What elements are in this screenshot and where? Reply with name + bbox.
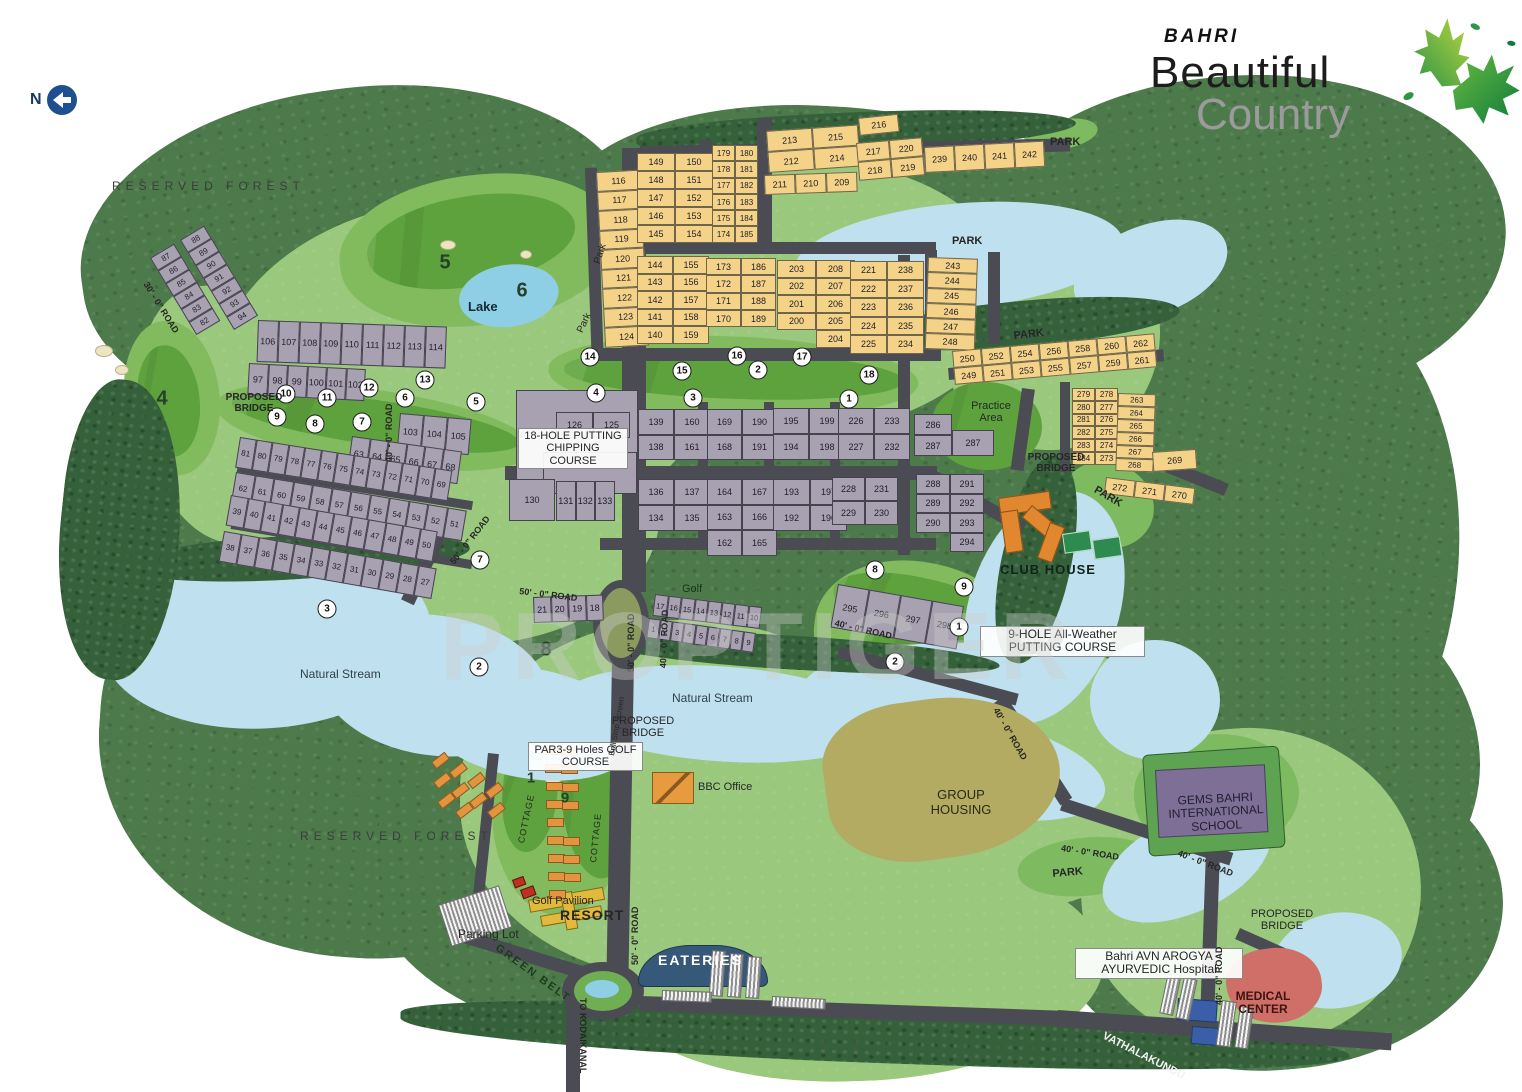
road-label-50: 50' - 0" ROAD [626, 614, 636, 672]
golf-label: Golf [682, 583, 702, 595]
north-indicator: N [30, 84, 78, 116]
golf-hole-marker: 2 [886, 653, 905, 672]
plot-cell-277: 277 [1095, 401, 1118, 414]
plot-block-174-185: 179180178181177182176183175184174185 [712, 145, 758, 243]
plot-block-217-220: 217220218219 [856, 137, 925, 181]
golf-hole-marker: 11 [318, 389, 337, 408]
plot-cell-226: 226 [838, 408, 874, 434]
plot-cell-233: 233 [874, 408, 910, 434]
logo-line2: Country [1196, 90, 1350, 140]
lake-label: Lake [468, 300, 498, 315]
plot-cell-209: 209 [826, 172, 858, 193]
plot-cell-251: 251 [982, 363, 1012, 382]
golf-hole-marker: 8 [306, 415, 325, 434]
park-label: PARK [1050, 136, 1080, 148]
plot-cell-225: 225 [850, 335, 887, 354]
plot-cell-191: 191 [742, 435, 777, 461]
plot-cell-185: 185 [735, 226, 758, 242]
plot-cell-112: 112 [382, 324, 404, 367]
road-label-40: 40' - 0" ROAD [1214, 947, 1224, 1005]
plot-block-226-233: 226233227232 [838, 408, 910, 460]
plot-cell-192: 192 [773, 505, 810, 531]
natural-stream-label: Natural Stream [300, 668, 381, 681]
plot-cell-230: 230 [865, 501, 898, 525]
golf-hole-marker: 3 [684, 389, 703, 408]
stream-east [1090, 640, 1220, 760]
plot-cell-161: 161 [674, 435, 710, 461]
plot-cell-201: 201 [777, 295, 816, 313]
chipping-course-label: 18-HOLE PUTTING CHIPPING COURSE [518, 428, 628, 469]
plot-cell-156: 156 [673, 274, 709, 292]
plot-cell-290: 290 [916, 513, 950, 533]
plot-cell-271: 271 [1134, 481, 1166, 502]
leaf-icon [1378, 10, 1522, 135]
plot-cell-283: 283 [1072, 439, 1095, 452]
golf-hole-marker: 8 [866, 561, 885, 580]
plot-cell-139: 139 [638, 409, 674, 435]
plot-cell-153: 153 [675, 207, 713, 225]
plot-cell-169: 169 [707, 409, 742, 435]
plot-287: 287 [952, 430, 994, 456]
brand-name: BAHRI [1164, 26, 1350, 48]
golf-hole-marker: 1 [950, 618, 969, 637]
golf-hole-marker: 1 [840, 390, 859, 409]
plot-block-145-154: 149150148151147152146153145154 [637, 153, 713, 243]
plot-cell-287: 287 [914, 435, 952, 456]
plot-cell-282: 282 [1072, 426, 1095, 439]
plot-cell-234: 234 [887, 335, 924, 354]
plot-cell-110: 110 [340, 323, 362, 366]
golf-pavilion-label: Golf Pavilion [532, 895, 594, 907]
plot-block-134-137: 136137134135 [638, 479, 710, 531]
plot-cell-135: 135 [674, 505, 710, 531]
plot-cell-292: 292 [950, 494, 984, 514]
plot-block-200-208: 203208202207201206200205204 [777, 260, 855, 348]
plot-cell-166: 166 [742, 505, 777, 531]
plot-block-288-294: 288291289292290293294 [916, 474, 984, 552]
plot-cell-275: 275 [1095, 426, 1118, 439]
plot-cell-134: 134 [638, 505, 674, 531]
plot-cell-130: 130 [509, 479, 555, 521]
plot-cell-148: 148 [637, 171, 675, 189]
road-label-50: 50' - 0" ROAD [630, 907, 640, 965]
plot-cell-144: 144 [637, 256, 673, 274]
park-label: PARK [1052, 865, 1083, 880]
golf-hole-marker: 3 [318, 600, 337, 619]
plot-cell-243: 243 [927, 257, 978, 274]
plot-block-131-133: 131132133 [556, 481, 615, 521]
plot-cell-269: 269 [1152, 449, 1197, 472]
plot-cell-229: 229 [832, 501, 865, 525]
plot-block-140-159: 144155143156142157141158140159 [637, 256, 709, 344]
plot-cell-245: 245 [926, 288, 977, 305]
plot-cell-116: 116 [596, 170, 641, 192]
course-number: 9 [561, 790, 569, 807]
plot-cell-165: 165 [742, 530, 777, 556]
plot-cell-158: 158 [673, 309, 709, 327]
plot-cell-210: 210 [795, 173, 827, 194]
plot-cell-141: 141 [637, 309, 673, 327]
golf-hole-marker: 7 [471, 551, 490, 570]
reserved-forest-label: RESERVED FOREST [300, 830, 493, 843]
course-number: 1 [527, 770, 535, 787]
plot-cell-113: 113 [403, 325, 425, 368]
plot-cell-143: 143 [637, 274, 673, 292]
plot-cell-293: 293 [950, 513, 984, 533]
plot-cell-157: 157 [673, 291, 709, 309]
par3-course-label: PAR3-9 Holes GOLF COURSE [528, 742, 643, 771]
plot-cell-221: 221 [850, 261, 887, 280]
plot-cell-294: 294 [950, 533, 984, 553]
plot-cell-232: 232 [874, 434, 910, 460]
plot-cell-190: 190 [742, 409, 777, 435]
plot-cell-218: 218 [858, 159, 893, 181]
plot-cell-170: 170 [706, 310, 741, 327]
north-arrow-icon [46, 84, 78, 116]
plot-block-106-114: 106107108109110111112113114 [257, 320, 447, 369]
plot-cell-268: 268 [1115, 458, 1153, 472]
plot-cell-147: 147 [637, 189, 675, 207]
plot-cell-172: 172 [706, 275, 741, 292]
tennis-court [1062, 530, 1093, 554]
brand-logo: BAHRI Beautiful Country [1150, 26, 1350, 140]
plot-cell-174: 174 [712, 226, 735, 242]
plot-cell-214: 214 [813, 146, 860, 170]
plot-cell-10: 10 [746, 606, 762, 629]
plot-cell-242: 242 [1014, 141, 1045, 169]
cottage-unit [563, 837, 580, 846]
plot-cell-21: 21 [533, 596, 551, 623]
plot-cell-183: 183 [735, 194, 758, 210]
natural-stream-label: Natural Stream [672, 692, 753, 705]
plot-cell-223: 223 [850, 298, 887, 317]
plot-cell-263: 263 [1118, 393, 1156, 407]
plot-cell-274: 274 [1095, 439, 1118, 452]
plot-cell-177: 177 [712, 178, 735, 194]
plot-cell-270: 270 [1163, 484, 1195, 505]
plot-cell-257: 257 [1069, 355, 1099, 374]
plot-cell-117: 117 [597, 189, 642, 211]
plot-cell-247: 247 [925, 318, 976, 335]
golf-hole-marker: 16 [728, 347, 747, 366]
plot-cell-133: 133 [595, 481, 615, 521]
site-master-plan-map: 116117118119120121122123124 149150148151… [0, 0, 1522, 1092]
plot-block-168-191: 169190168191 [707, 409, 777, 460]
plot-cell-181: 181 [735, 161, 758, 177]
plot-cell-231: 231 [865, 477, 898, 501]
plot-cell-160: 160 [674, 409, 710, 435]
plot-cell-176: 176 [712, 194, 735, 210]
plot-cell-253: 253 [1011, 360, 1041, 379]
plot-cell-132: 132 [576, 481, 596, 521]
plot-cell-228: 228 [832, 477, 865, 501]
road-label-40: 40' - 0" ROAD [384, 404, 394, 462]
plot-cell-163: 163 [707, 505, 742, 531]
plot-cell-195: 195 [773, 408, 809, 434]
plot-cell-280: 280 [1072, 401, 1095, 414]
plot-cell-188: 188 [741, 293, 776, 310]
plot-cell-178: 178 [712, 161, 735, 177]
plot-cell-114: 114 [424, 326, 446, 369]
plot-cell-155: 155 [673, 256, 709, 274]
plot-cell-194: 194 [773, 434, 809, 460]
club-house-label: CLUB HOUSE [1000, 563, 1096, 578]
plot-cell-200: 200 [777, 313, 816, 331]
group-housing-label: GROUP HOUSING [918, 788, 1004, 817]
plot-cell-265: 265 [1117, 419, 1155, 433]
course-number: 4 [156, 388, 167, 411]
putting-course-label: 9-HOLE All-Weather PUTTING COURSE [980, 626, 1145, 657]
plot-block-286-287: 286287 [914, 414, 952, 456]
plot-cell-168: 168 [707, 435, 742, 461]
plot-cell-138: 138 [638, 435, 674, 461]
plot-cell-106: 106 [257, 320, 279, 363]
plot-cell-237: 237 [887, 280, 924, 299]
plot-cell-154: 154 [675, 225, 713, 243]
plot-cell-281: 281 [1072, 414, 1095, 427]
plot-cell-286: 286 [914, 414, 952, 435]
golf-hole-marker: 7 [353, 413, 372, 432]
plot-cell-182: 182 [735, 178, 758, 194]
bbc-office-building [652, 772, 694, 804]
cottage-unit [564, 873, 581, 882]
plot-cell-145: 145 [637, 225, 675, 243]
plot-cell-109: 109 [319, 322, 341, 365]
plot-cell-136: 136 [638, 479, 674, 505]
plot-cell-241: 241 [984, 142, 1015, 170]
plot-269: 269 [1152, 449, 1197, 472]
tennis-court [1092, 536, 1123, 560]
plot-cell-212: 212 [767, 149, 814, 173]
course-number: 8 [540, 639, 551, 662]
plot-cell-261: 261 [1127, 350, 1157, 369]
golf-hole-marker: 17 [793, 348, 812, 367]
golf-hole-marker: 18 [860, 366, 879, 385]
golf-hole-marker: 13 [416, 371, 435, 390]
plot-cell-240: 240 [954, 144, 985, 172]
plot-block-194-199: 195199194198 [773, 408, 845, 460]
practice-area-label: Practice Area [960, 400, 1022, 425]
plot-block-170-189: 173186172187171188170189 [706, 258, 776, 327]
plot-cell-259: 259 [1098, 353, 1128, 372]
plot-cell-255: 255 [1040, 358, 1070, 377]
plot-block-209-211: 211210209 [764, 172, 858, 195]
golf-hole-marker: 12 [360, 379, 379, 398]
plot-cell-18: 18 [585, 595, 603, 622]
plot-cell-235: 235 [887, 317, 924, 336]
golf-hole-marker: 5 [467, 393, 486, 412]
cottage-unit [548, 872, 565, 881]
plot-cell-291: 291 [950, 474, 984, 494]
plot-cell-162: 162 [707, 530, 742, 556]
plot-cell-173: 173 [706, 258, 741, 275]
north-letter: N [30, 91, 42, 109]
plot-cell-224: 224 [850, 317, 887, 336]
plot-cell-167: 167 [742, 479, 777, 505]
plot-cell-211: 211 [764, 174, 796, 195]
plot-cell-180: 180 [735, 145, 758, 161]
plot-cell-186: 186 [741, 258, 776, 275]
plot-block-243-248: 243244245246247248 [925, 257, 978, 350]
cottage-unit [547, 818, 564, 827]
plot-cell-150: 150 [675, 153, 713, 171]
plot-cell-248: 248 [925, 333, 976, 350]
plot-block-263-268: 263264265266267268 [1115, 393, 1156, 472]
plot-cell-171: 171 [706, 293, 741, 310]
plot-cell-131: 131 [556, 481, 576, 521]
plot-cell-187: 187 [741, 275, 776, 292]
road-label-40: 40' - 0" ROAD [658, 610, 670, 669]
proposed-bridge-label: PROPOSED BRIDGE [220, 392, 288, 414]
plot-cell-267: 267 [1116, 445, 1154, 459]
plot-cell-151: 151 [675, 171, 713, 189]
cottage-unit [563, 855, 580, 864]
golf-hole-marker: 2 [470, 658, 489, 677]
parking-lot-label: Parking Lot [458, 928, 519, 941]
plot-cell-279: 279 [1072, 388, 1095, 401]
plot-cell-276: 276 [1095, 414, 1118, 427]
plot-block-228-231: 228231229230 [832, 477, 898, 525]
resort-label: RESORT [560, 908, 624, 924]
plot-cell-184: 184 [735, 210, 758, 226]
plot-block-212-215: 213215212214 [766, 125, 861, 173]
plot-cell-238: 238 [887, 261, 924, 280]
plot-cell-266: 266 [1116, 432, 1154, 446]
eateries-label: EATERIES [658, 953, 743, 969]
proposed-bridge-label: PROPOSED BRIDGE [1246, 908, 1318, 933]
medical-center-label: MEDICAL CENTER [1226, 990, 1300, 1017]
plot-cell-203: 203 [777, 260, 816, 278]
plot-cell-159: 159 [673, 326, 709, 344]
plot-cell-152: 152 [675, 189, 713, 207]
plot-cell-189: 189 [741, 310, 776, 327]
plot-cell-246: 246 [926, 303, 977, 320]
plot-cell-108: 108 [299, 321, 321, 364]
course-number: 6 [516, 280, 527, 303]
plot-cell-107: 107 [278, 321, 300, 364]
golf-hole-marker: 9 [955, 578, 974, 597]
plot-cell-227: 227 [838, 434, 874, 460]
plot-cell-236: 236 [887, 298, 924, 317]
plot-cell-202: 202 [777, 278, 816, 296]
plot-cell-239: 239 [924, 145, 955, 173]
proposed-bridge-label: PROPOSED BRIDGE [1022, 452, 1090, 474]
plot-cell-137: 137 [674, 479, 710, 505]
plot-130: 130 [509, 479, 555, 521]
plot-block-221-238: 221238222237223236224235225234 [850, 261, 924, 354]
cottage-unit [547, 836, 564, 845]
park-label: PARK [952, 235, 982, 247]
reserved-forest-label: RESERVED FOREST [112, 180, 305, 193]
plot-cell-278: 278 [1095, 388, 1118, 401]
plot-cell-146: 146 [637, 207, 675, 225]
to-kodaikanal-label: TO KODAIKANAL [578, 998, 588, 1073]
plot-block-162-167: 164167163166162165 [707, 479, 777, 556]
plot-cell-179: 179 [712, 145, 735, 161]
plot-cell-249: 249 [953, 365, 983, 384]
plot-cell-142: 142 [637, 291, 673, 309]
plot-cell-289: 289 [916, 494, 950, 514]
plot-block-138-161: 139160138161 [638, 409, 710, 460]
golf-hole-marker: 2 [749, 361, 768, 380]
bbc-office-label: BBC Office [698, 781, 752, 793]
golf-hole-marker: 6 [396, 389, 415, 408]
golf-hole-marker: 14 [581, 348, 600, 367]
plot-cell-193: 193 [773, 479, 810, 505]
plot-cell-111: 111 [361, 324, 383, 367]
plot-cell-287: 287 [952, 430, 994, 456]
course-number: 5 [439, 252, 450, 275]
plot-cell-149: 149 [637, 153, 675, 171]
golf-hole-marker: 15 [673, 362, 692, 381]
plot-cell-288: 288 [916, 474, 950, 494]
plot-cell-175: 175 [712, 210, 735, 226]
plot-cell-264: 264 [1117, 406, 1155, 420]
plot-cell-164: 164 [707, 479, 742, 505]
school-label: GEMS BAHRI INTERNATIONAL SCHOOL [1150, 789, 1282, 836]
plot-cell-140: 140 [637, 326, 673, 344]
plot-cell-244: 244 [927, 272, 978, 289]
plot-cell-222: 222 [850, 280, 887, 299]
golf-hole-marker: 4 [587, 384, 606, 403]
plot-cell-219: 219 [891, 156, 926, 178]
